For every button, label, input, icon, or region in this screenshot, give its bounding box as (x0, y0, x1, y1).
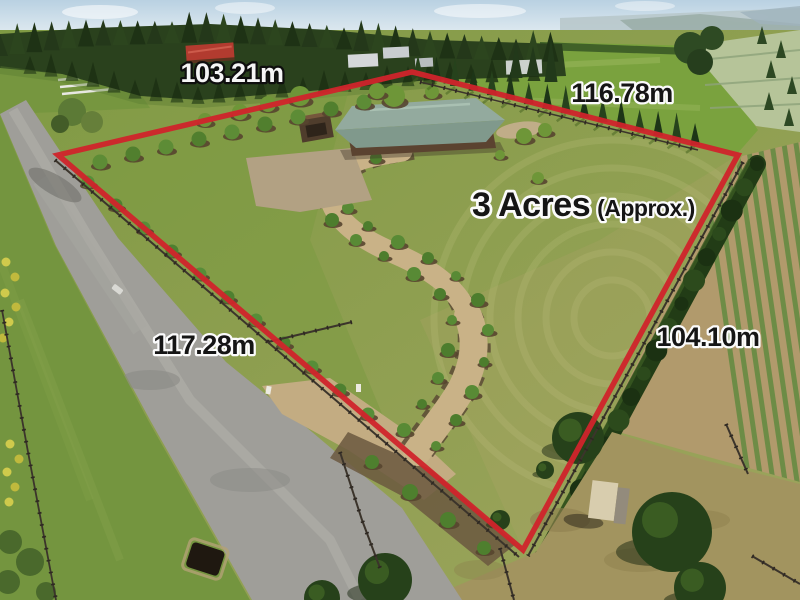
property-scene: 103.21m 116.78m 117.28m 104.10m 3 Acres(… (0, 0, 800, 600)
measurement-label-top-left: 103.21m (180, 58, 283, 88)
cloud (62, 5, 138, 19)
measurement-label-right: 104.10m (656, 322, 759, 352)
area-qualifier: (Approx.) (597, 195, 695, 221)
area-value: 3 Acres (472, 186, 590, 224)
aerial-property-photo: 103.21m 116.78m 117.28m 104.10m 3 Acres(… (0, 0, 800, 600)
measurement-label-bottom-left: 117.28m (153, 330, 255, 360)
gate-post (356, 384, 361, 392)
measurement-label-top-right: 116.78m (571, 78, 673, 108)
